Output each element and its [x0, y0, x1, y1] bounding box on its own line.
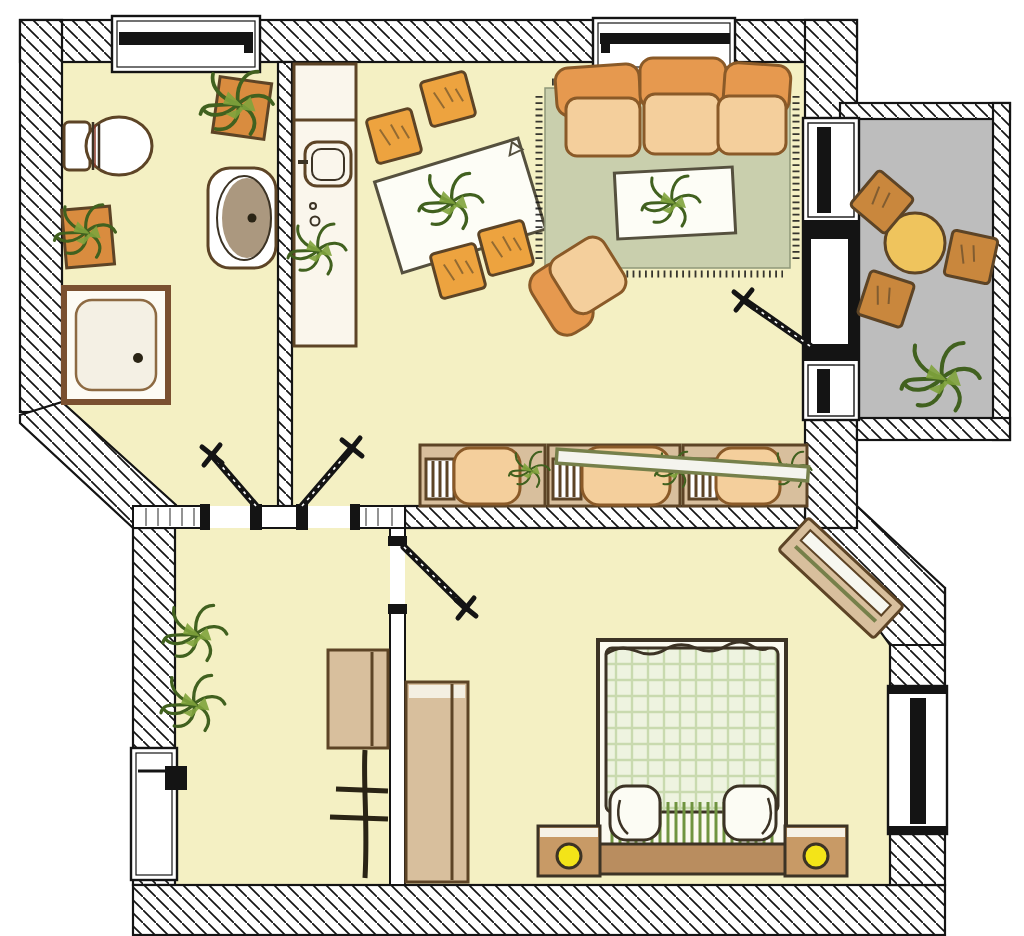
dining-chair-3 — [478, 220, 534, 276]
bed-base — [598, 844, 786, 874]
shower — [64, 288, 168, 402]
sideboard-row — [420, 445, 812, 506]
bathroom-kitchen-wall — [278, 62, 292, 506]
balcony-wall-top — [840, 103, 1010, 119]
bed-pillow-right — [724, 786, 776, 840]
balcony-wall-right — [993, 103, 1010, 440]
outer-wall-bottom — [133, 885, 945, 935]
lamp-left — [557, 844, 581, 868]
toilet — [64, 117, 152, 175]
kitchen-counter — [294, 64, 356, 346]
bed-pillow-left — [610, 786, 660, 840]
balcony-chair-2 — [944, 230, 999, 285]
floor-plan-canvas — [0, 0, 1024, 936]
sofa — [554, 58, 791, 156]
dining-chair-1 — [366, 108, 422, 164]
bedroom-top-wall — [405, 506, 805, 528]
shower-drain — [133, 353, 143, 363]
outer-wall-left-upper — [20, 20, 62, 412]
hall-cabinet — [328, 650, 388, 748]
dining-chair-2 — [420, 71, 476, 127]
double-bed — [598, 640, 786, 874]
washbasin — [208, 168, 276, 268]
hall-bedroom-wall — [388, 528, 407, 885]
bedroom-window — [888, 686, 947, 834]
living-right-wall-lower — [805, 418, 857, 528]
dining-chair-4 — [430, 243, 486, 299]
wardrobe — [406, 682, 468, 882]
lamp-right — [804, 844, 828, 868]
bathroom-window — [112, 16, 260, 72]
nightstand-left — [538, 826, 600, 876]
balcony-door-assembly — [803, 118, 859, 420]
hall-top-wall — [133, 504, 405, 530]
floor-plan-page — [0, 0, 1024, 936]
balcony-wall-bottom — [857, 418, 1010, 440]
nightstand-right — [785, 826, 847, 876]
